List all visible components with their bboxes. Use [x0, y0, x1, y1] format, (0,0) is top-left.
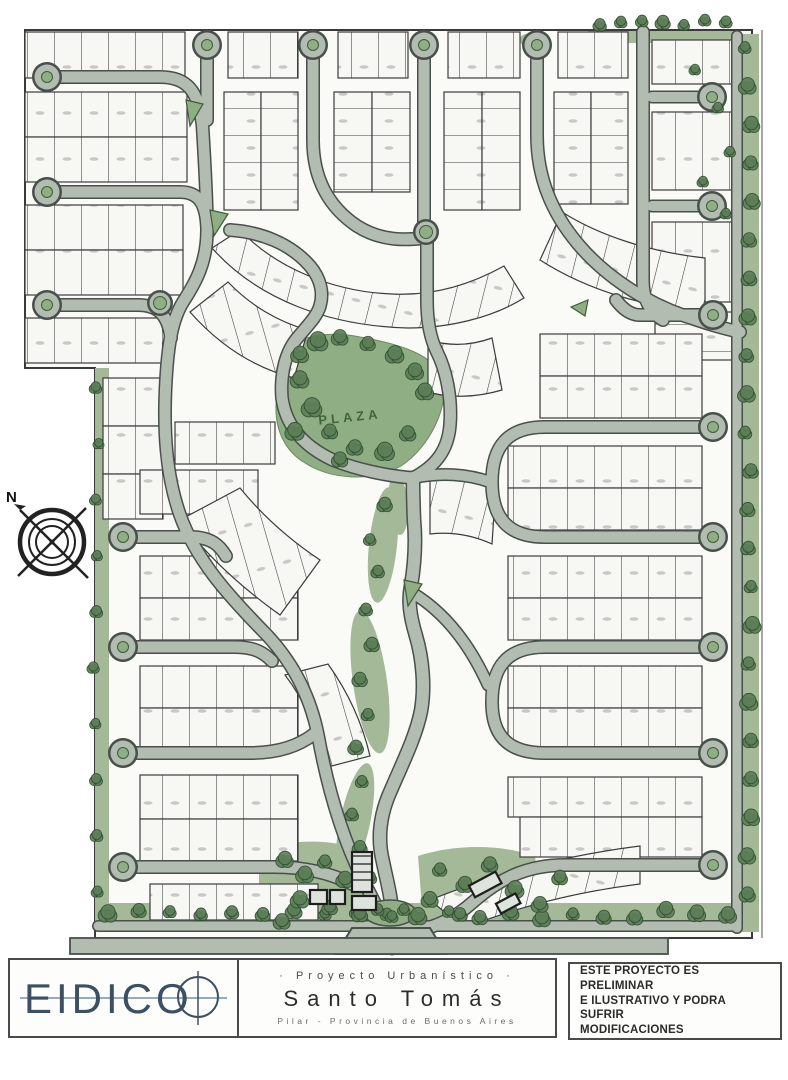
project-title-cell: · Proyecto Urbanístico · Santo Tomás Pil…	[239, 960, 555, 1036]
compass-rose: N	[6, 489, 88, 578]
brand-name: EIDICO	[24, 975, 193, 1022]
project-name: Santo Tomás	[283, 986, 510, 1012]
compass-north-label: N	[6, 489, 17, 506]
brand-cell: EIDICO	[10, 960, 239, 1036]
disclaimer-box: ESTE PROYECTO ES PRELIMINAR E ILUSTRATIV…	[568, 962, 782, 1040]
eidico-logo: EIDICO	[16, 966, 231, 1030]
plan-canvas: PLAZA N	[0, 0, 788, 1080]
site-plan-map: PLAZA N	[0, 0, 788, 1080]
project-location: Pilar - Provincia de Buenos Aires	[277, 1016, 516, 1026]
title-block: EIDICO · Proyecto Urbanístico · Santo To…	[8, 958, 557, 1038]
site-plan-page: PLAZA N EIDICO · Proyecto Urbanístico ·	[0, 0, 788, 1080]
project-kicker: · Proyecto Urbanístico ·	[279, 970, 515, 982]
disclaimer-line-1: ESTE PROYECTO ES PRELIMINAR	[580, 964, 770, 994]
disclaimer-line-3: MODIFICACIONES	[580, 1023, 770, 1038]
disclaimer-line-2: E ILUSTRATIVO Y PODRA SUFRIR	[580, 994, 770, 1024]
